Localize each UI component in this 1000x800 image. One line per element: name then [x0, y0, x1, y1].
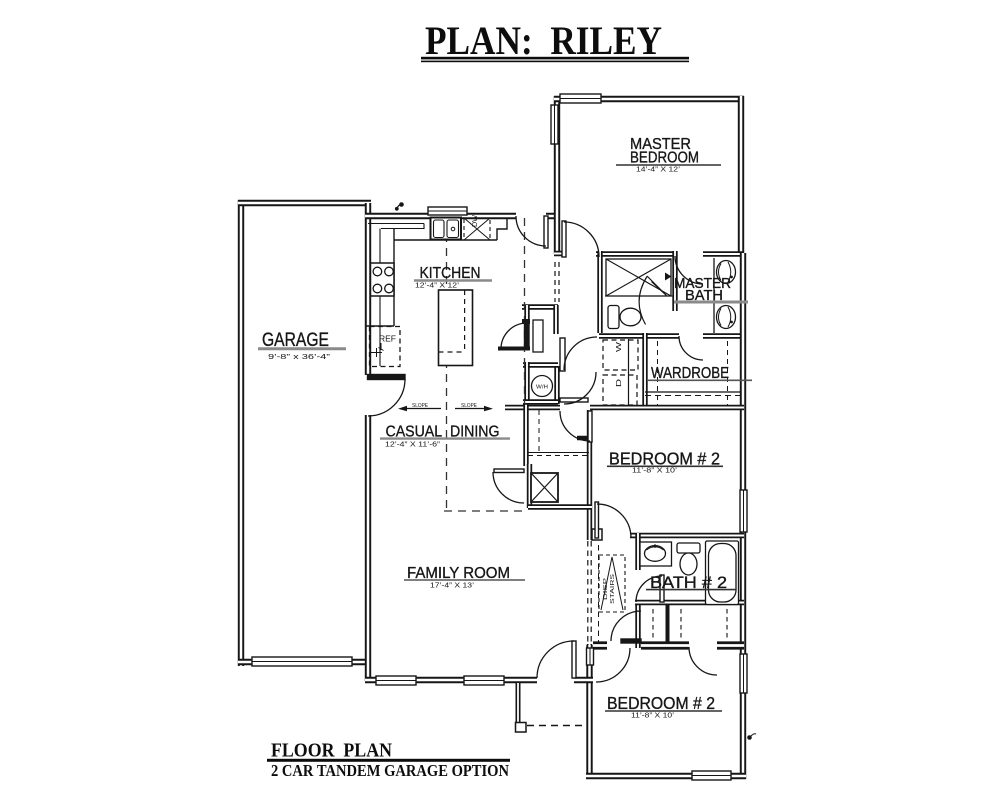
svg-text:DISP: DISP — [603, 577, 609, 600]
svg-text:WARDROBE: WARDROBE — [651, 365, 729, 382]
svg-text:2 CAR TANDEM GARAGE OPTION: 2 CAR TANDEM GARAGE OPTION — [271, 761, 510, 780]
svg-text:BEDROOM # 2: BEDROOM # 2 — [607, 693, 715, 713]
svg-text:PLAN: RILEY: PLAN: RILEY — [425, 18, 662, 63]
svg-text:11’-8” X 10’: 11’-8” X 10’ — [632, 468, 678, 475]
svg-text:9’-8” x 36’-4”: 9’-8” x 36’-4” — [268, 354, 331, 361]
svg-text:SLOPE: SLOPE — [412, 403, 428, 409]
svg-text:BEDROOM: BEDROOM — [630, 150, 699, 167]
svg-text:DW: DW — [470, 214, 479, 227]
svg-text:17’-4” X 13’: 17’-4” X 13’ — [430, 583, 475, 590]
svg-text:REF: REF — [379, 335, 396, 344]
svg-text:12’-4” X 11’-6”: 12’-4” X 11’-6” — [385, 442, 441, 449]
svg-text:11’-8” X 10’: 11’-8” X 10’ — [631, 713, 675, 720]
svg-text:12’-4” X 12’: 12’-4” X 12’ — [415, 283, 460, 290]
svg-text:FLOOR PLAN: FLOOR PLAN — [271, 741, 392, 762]
svg-text:D: D — [614, 378, 623, 387]
svg-text:STAIRS: STAIRS — [610, 574, 616, 604]
svg-text:SLOPE: SLOPE — [461, 403, 477, 409]
svg-text:14’-4” X 12’: 14’-4” X 12’ — [636, 167, 681, 174]
svg-text:W/H: W/H — [536, 385, 548, 391]
svg-text:W: W — [614, 341, 623, 352]
